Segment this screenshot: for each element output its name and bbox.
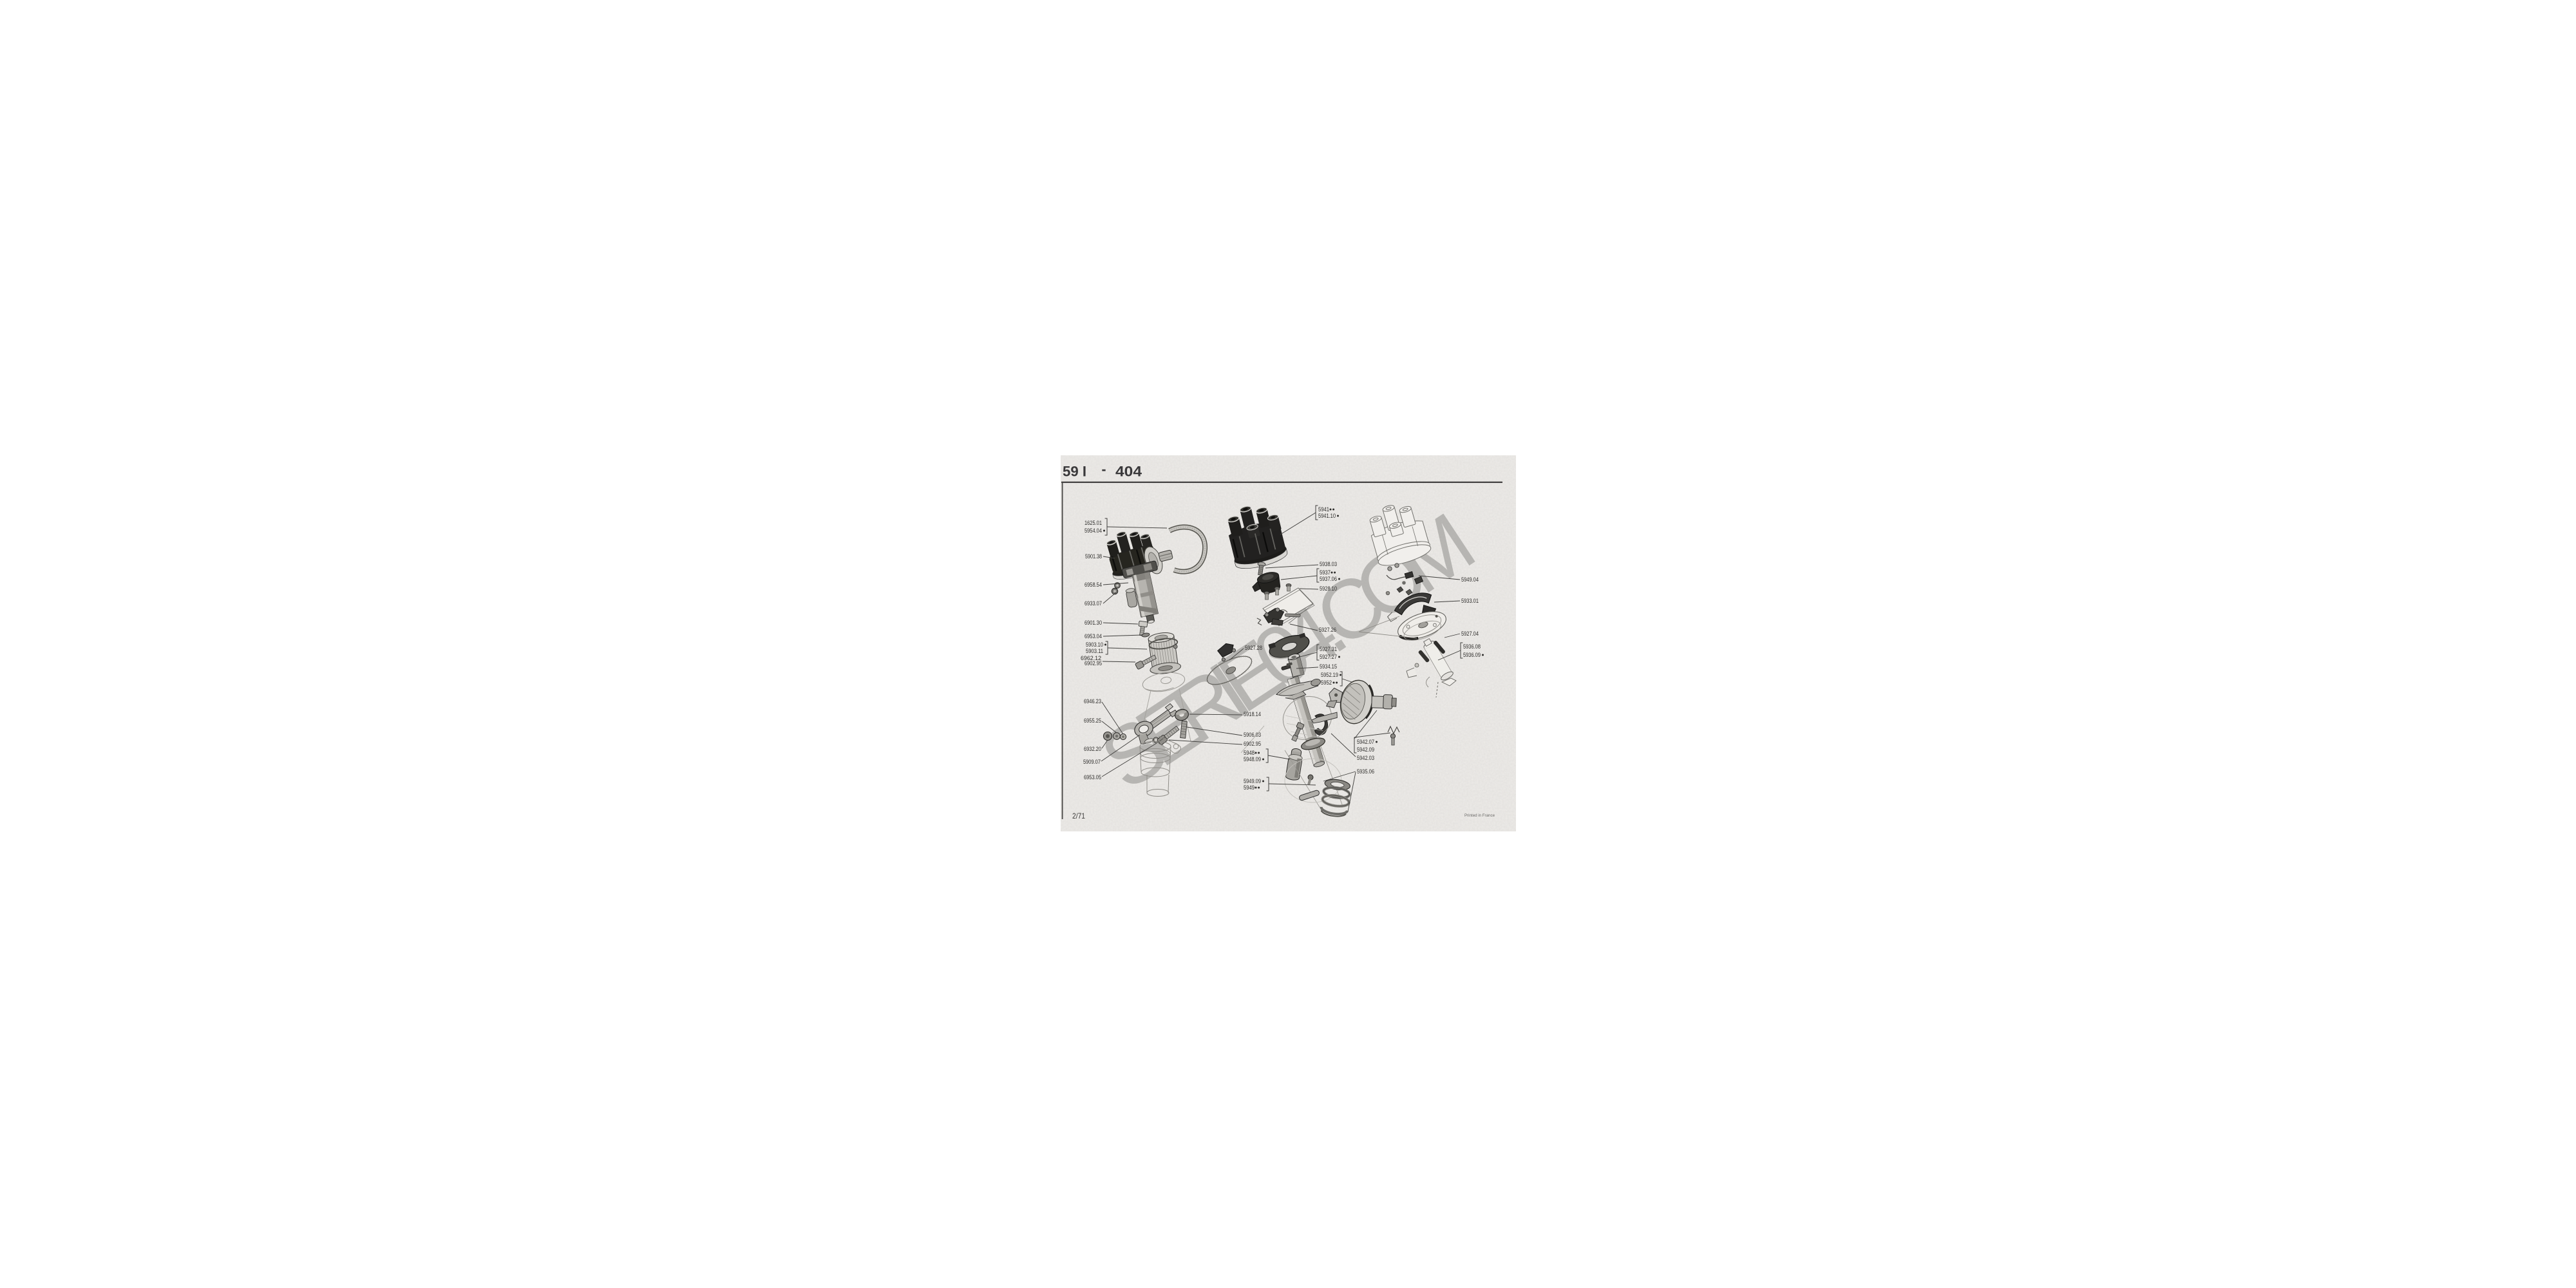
- svg-text:5952: 5952: [1321, 679, 1332, 686]
- svg-text:5927.04: 5927.04: [1461, 630, 1479, 637]
- svg-text:Printed in France: Printed in France: [1464, 813, 1495, 818]
- svg-text:5934.15: 5934.15: [1320, 663, 1337, 670]
- svg-text:6901.30: 6901.30: [1084, 620, 1102, 626]
- svg-text:5903.11: 5903.11: [1086, 648, 1103, 654]
- svg-text:6932.20: 6932.20: [1084, 746, 1101, 752]
- svg-text:6953.05: 6953.05: [1084, 774, 1101, 781]
- svg-text:5941.10: 5941.10: [1318, 513, 1336, 519]
- svg-text:5948: 5948: [1244, 750, 1255, 756]
- svg-text:6955.25: 6955.25: [1084, 717, 1101, 724]
- svg-text:59 I: 59 I: [1063, 464, 1086, 480]
- svg-text:5948.09: 5948.09: [1244, 756, 1261, 762]
- svg-text:2/71: 2/71: [1072, 811, 1085, 820]
- svg-text:5937.06: 5937.06: [1320, 576, 1337, 582]
- svg-text:6902.95: 6902.95: [1084, 660, 1102, 667]
- svg-text:5936.09: 5936.09: [1463, 652, 1481, 658]
- svg-text:5949.09: 5949.09: [1244, 778, 1261, 784]
- svg-text:5941: 5941: [1318, 506, 1329, 513]
- svg-text:6946.23: 6946.23: [1084, 698, 1101, 705]
- svg-text:5949: 5949: [1244, 784, 1255, 791]
- svg-text:6953.04: 6953.04: [1084, 633, 1102, 639]
- svg-text:6933.07: 6933.07: [1084, 600, 1102, 607]
- svg-text:5942.09: 5942.09: [1357, 746, 1374, 753]
- svg-text:5901.38: 5901.38: [1085, 553, 1102, 560]
- svg-text:5928.10: 5928.10: [1320, 585, 1337, 592]
- svg-text:1625.01: 1625.01: [1084, 520, 1102, 526]
- svg-text:5935.06: 5935.06: [1357, 768, 1374, 775]
- svg-text:5927.31: 5927.31: [1320, 646, 1337, 652]
- svg-text:5949.04: 5949.04: [1461, 576, 1479, 583]
- svg-text:5918.14: 5918.14: [1244, 711, 1261, 717]
- svg-text:5937: 5937: [1320, 569, 1331, 576]
- svg-text:5954.04: 5954.04: [1084, 527, 1102, 534]
- svg-text:5942.07: 5942.07: [1357, 739, 1374, 745]
- svg-text:5906.03: 5906.03: [1244, 732, 1261, 738]
- svg-text:6958.54: 6958.54: [1084, 582, 1102, 588]
- svg-text:6902.95: 6902.95: [1244, 741, 1261, 747]
- svg-text:5903.10: 5903.10: [1086, 641, 1103, 648]
- svg-text:5952.19: 5952.19: [1321, 672, 1338, 678]
- svg-text:5927.28: 5927.28: [1245, 645, 1262, 651]
- svg-text:5933.01: 5933.01: [1461, 598, 1479, 604]
- svg-text:5927.26: 5927.26: [1319, 627, 1336, 633]
- svg-text:404: 404: [1115, 464, 1142, 480]
- svg-text:-: -: [1102, 461, 1106, 477]
- svg-text:5942.03: 5942.03: [1357, 755, 1374, 761]
- svg-text:5936.08: 5936.08: [1463, 643, 1481, 650]
- svg-text:5909.07: 5909.07: [1083, 759, 1101, 765]
- svg-text:5927.27: 5927.27: [1320, 654, 1337, 660]
- svg-text:5938.03: 5938.03: [1320, 561, 1337, 567]
